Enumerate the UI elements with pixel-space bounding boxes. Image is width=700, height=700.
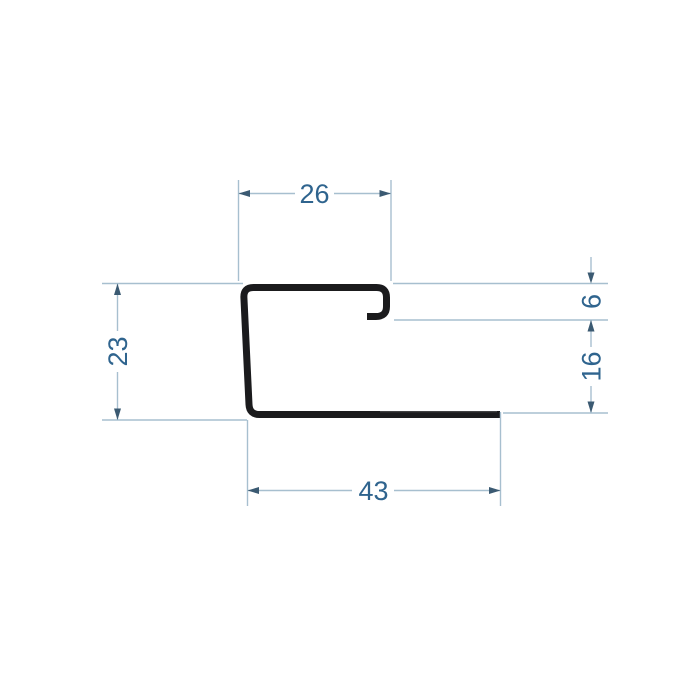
dimension-bottom-width: 43 — [248, 412, 501, 506]
profile-outline — [244, 288, 500, 415]
dim-label-left-height: 23 — [103, 336, 133, 366]
drawing-canvas: 26 23 6 16 — [0, 0, 700, 700]
arrow-right-icon — [489, 487, 501, 494]
dimension-right-lower-height: 16 — [503, 320, 608, 413]
dim-label-bottom-width: 43 — [358, 476, 388, 506]
arrow-down-icon — [588, 273, 595, 284]
arrow-down-icon — [588, 402, 595, 414]
profile-drawing: 26 23 6 16 — [0, 0, 700, 700]
profile-path — [244, 288, 500, 415]
arrow-down-icon — [114, 409, 121, 421]
dim-label-hook-gap: 6 — [577, 294, 607, 309]
arrow-up-icon — [114, 284, 121, 296]
dim-label-right-lower-height: 16 — [577, 351, 607, 381]
dimension-left-height: 23 — [102, 284, 247, 421]
dim-label-top-width: 26 — [299, 179, 329, 209]
arrow-up-icon — [588, 320, 595, 332]
dimension-top-width: 26 — [239, 179, 392, 281]
arrow-right-icon — [380, 190, 392, 197]
arrow-left-icon — [239, 190, 251, 197]
dimension-hook-gap: 6 — [393, 257, 608, 320]
arrow-left-icon — [248, 487, 260, 494]
